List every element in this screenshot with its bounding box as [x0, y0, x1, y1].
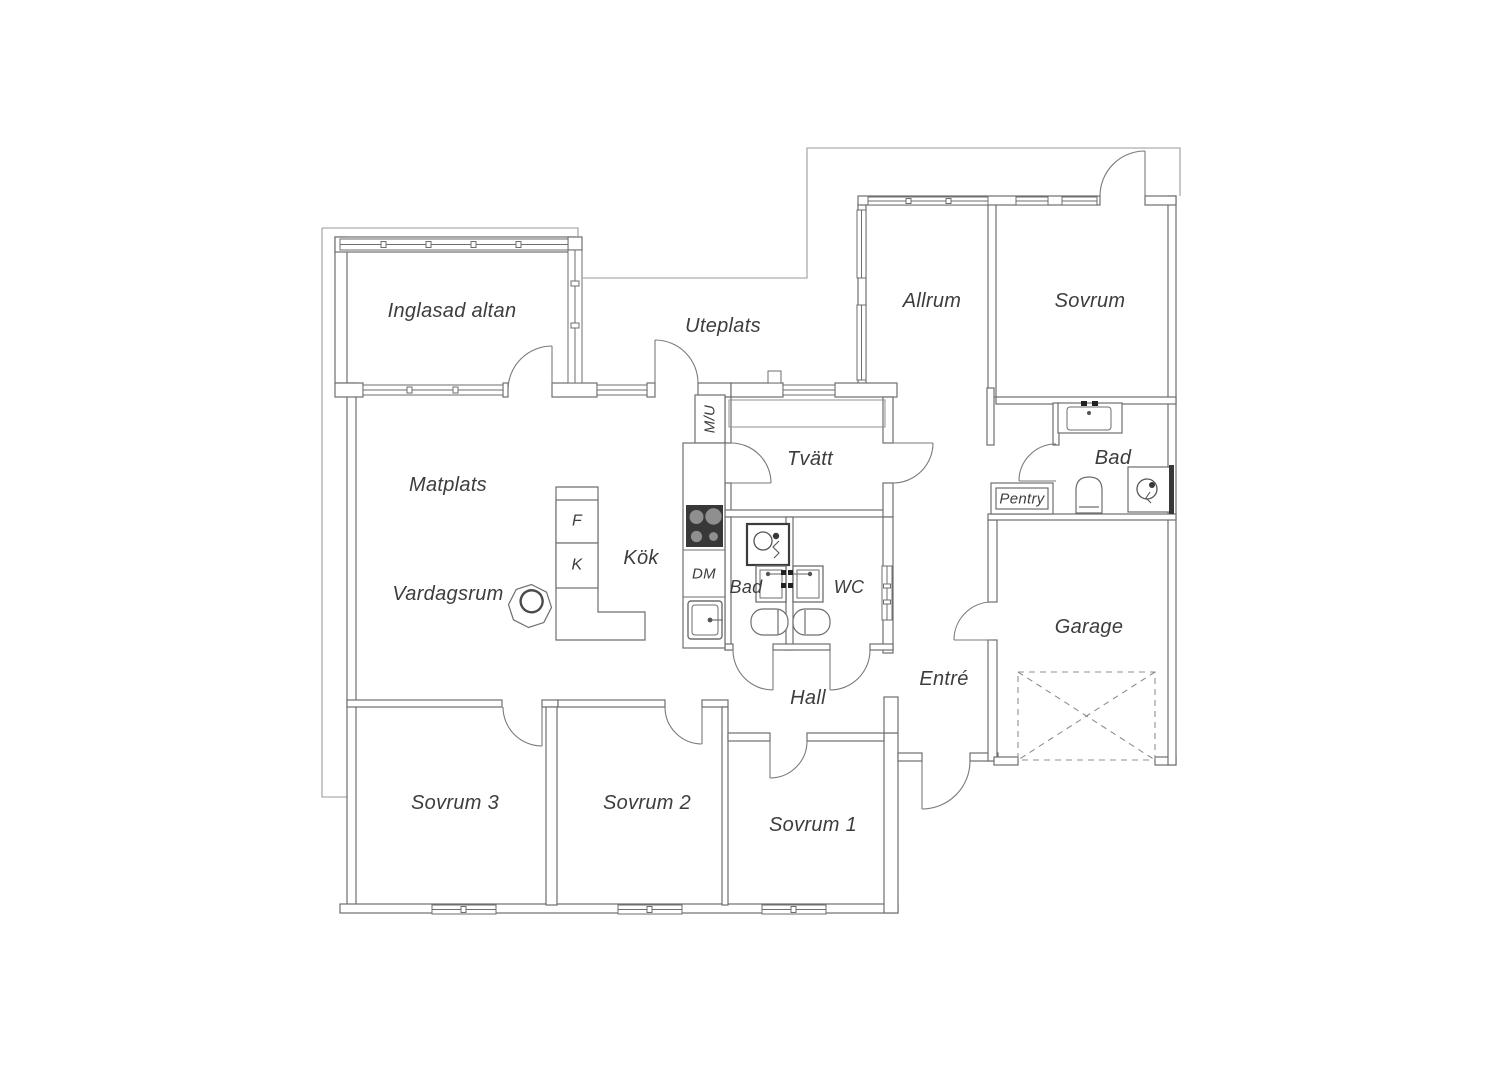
room-label-sovrum-1: Sovrum 1 — [769, 814, 857, 836]
room-label-inglasad-altan: Inglasad altan — [388, 300, 517, 322]
door-swing — [893, 443, 933, 483]
window — [432, 905, 826, 914]
doors — [503, 151, 1145, 809]
washbasin-icon — [1058, 401, 1122, 433]
door-swing — [954, 602, 992, 640]
window — [340, 239, 568, 250]
room-label-bad-upper: Bad — [1095, 447, 1132, 469]
room-label-pentry: Pentry — [999, 491, 1045, 508]
appliance-label-mu: M/U — [702, 405, 719, 433]
window — [868, 197, 988, 205]
room-label-hall: Hall — [790, 687, 826, 709]
door-swing — [922, 761, 970, 809]
kitchen — [556, 443, 725, 648]
room-label-uteplats: Uteplats — [685, 315, 761, 337]
room-label-sovrum-3: Sovrum 3 — [411, 792, 499, 814]
room-label-sovrum-2: Sovrum 2 — [603, 792, 691, 814]
door-swing — [655, 340, 698, 383]
door-swing — [1100, 151, 1145, 196]
stove-icon — [686, 505, 723, 547]
room-label-kok: Kök — [623, 547, 659, 569]
window — [363, 385, 503, 395]
vent-marker — [768, 371, 781, 383]
laundry-bench — [729, 400, 885, 427]
toilet-icon — [1076, 477, 1102, 513]
room-label-bad: Bad — [730, 577, 764, 597]
window — [568, 250, 582, 383]
toilet-icon — [793, 609, 830, 635]
kitchen-sink-icon — [688, 601, 723, 639]
shower-icon — [747, 524, 789, 565]
door-swing — [503, 707, 542, 746]
door-swing — [1019, 444, 1056, 481]
washbasin-icon — [793, 566, 823, 602]
floor-plan-page: Inglasad altan Uteplats Allrum Sovrum Ma… — [0, 0, 1500, 1060]
room-label-wc: WC — [834, 577, 865, 597]
appliance-label-dm: DM — [692, 566, 716, 583]
floor-plan-svg: Inglasad altan Uteplats Allrum Sovrum Ma… — [0, 0, 1500, 1060]
room-label-sovrum: Sovrum — [1055, 290, 1126, 312]
door-swing — [770, 741, 807, 778]
room-label-allrum: Allrum — [902, 290, 961, 312]
fireplace-icon — [505, 581, 555, 631]
appliance-label-f: F — [572, 513, 583, 530]
room-label-garage: Garage — [1055, 616, 1124, 638]
window — [882, 566, 892, 620]
door-swing — [665, 707, 702, 744]
garage-door-marker — [1018, 672, 1155, 760]
toilet-icon — [751, 609, 788, 635]
door-swing — [733, 650, 773, 690]
room-label-tvatt: Tvätt — [787, 448, 834, 470]
room-label-matplats: Matplats — [409, 474, 487, 496]
room-label-vardagsrum: Vardagsrum — [392, 583, 503, 605]
door-swing — [731, 443, 771, 483]
appliance-label-k: K — [572, 557, 584, 574]
shower-icon — [1128, 465, 1174, 514]
window — [783, 385, 835, 395]
room-label-entre: Entré — [919, 668, 968, 690]
door-swing — [830, 650, 870, 690]
door-swing — [508, 346, 552, 390]
window — [597, 385, 647, 395]
